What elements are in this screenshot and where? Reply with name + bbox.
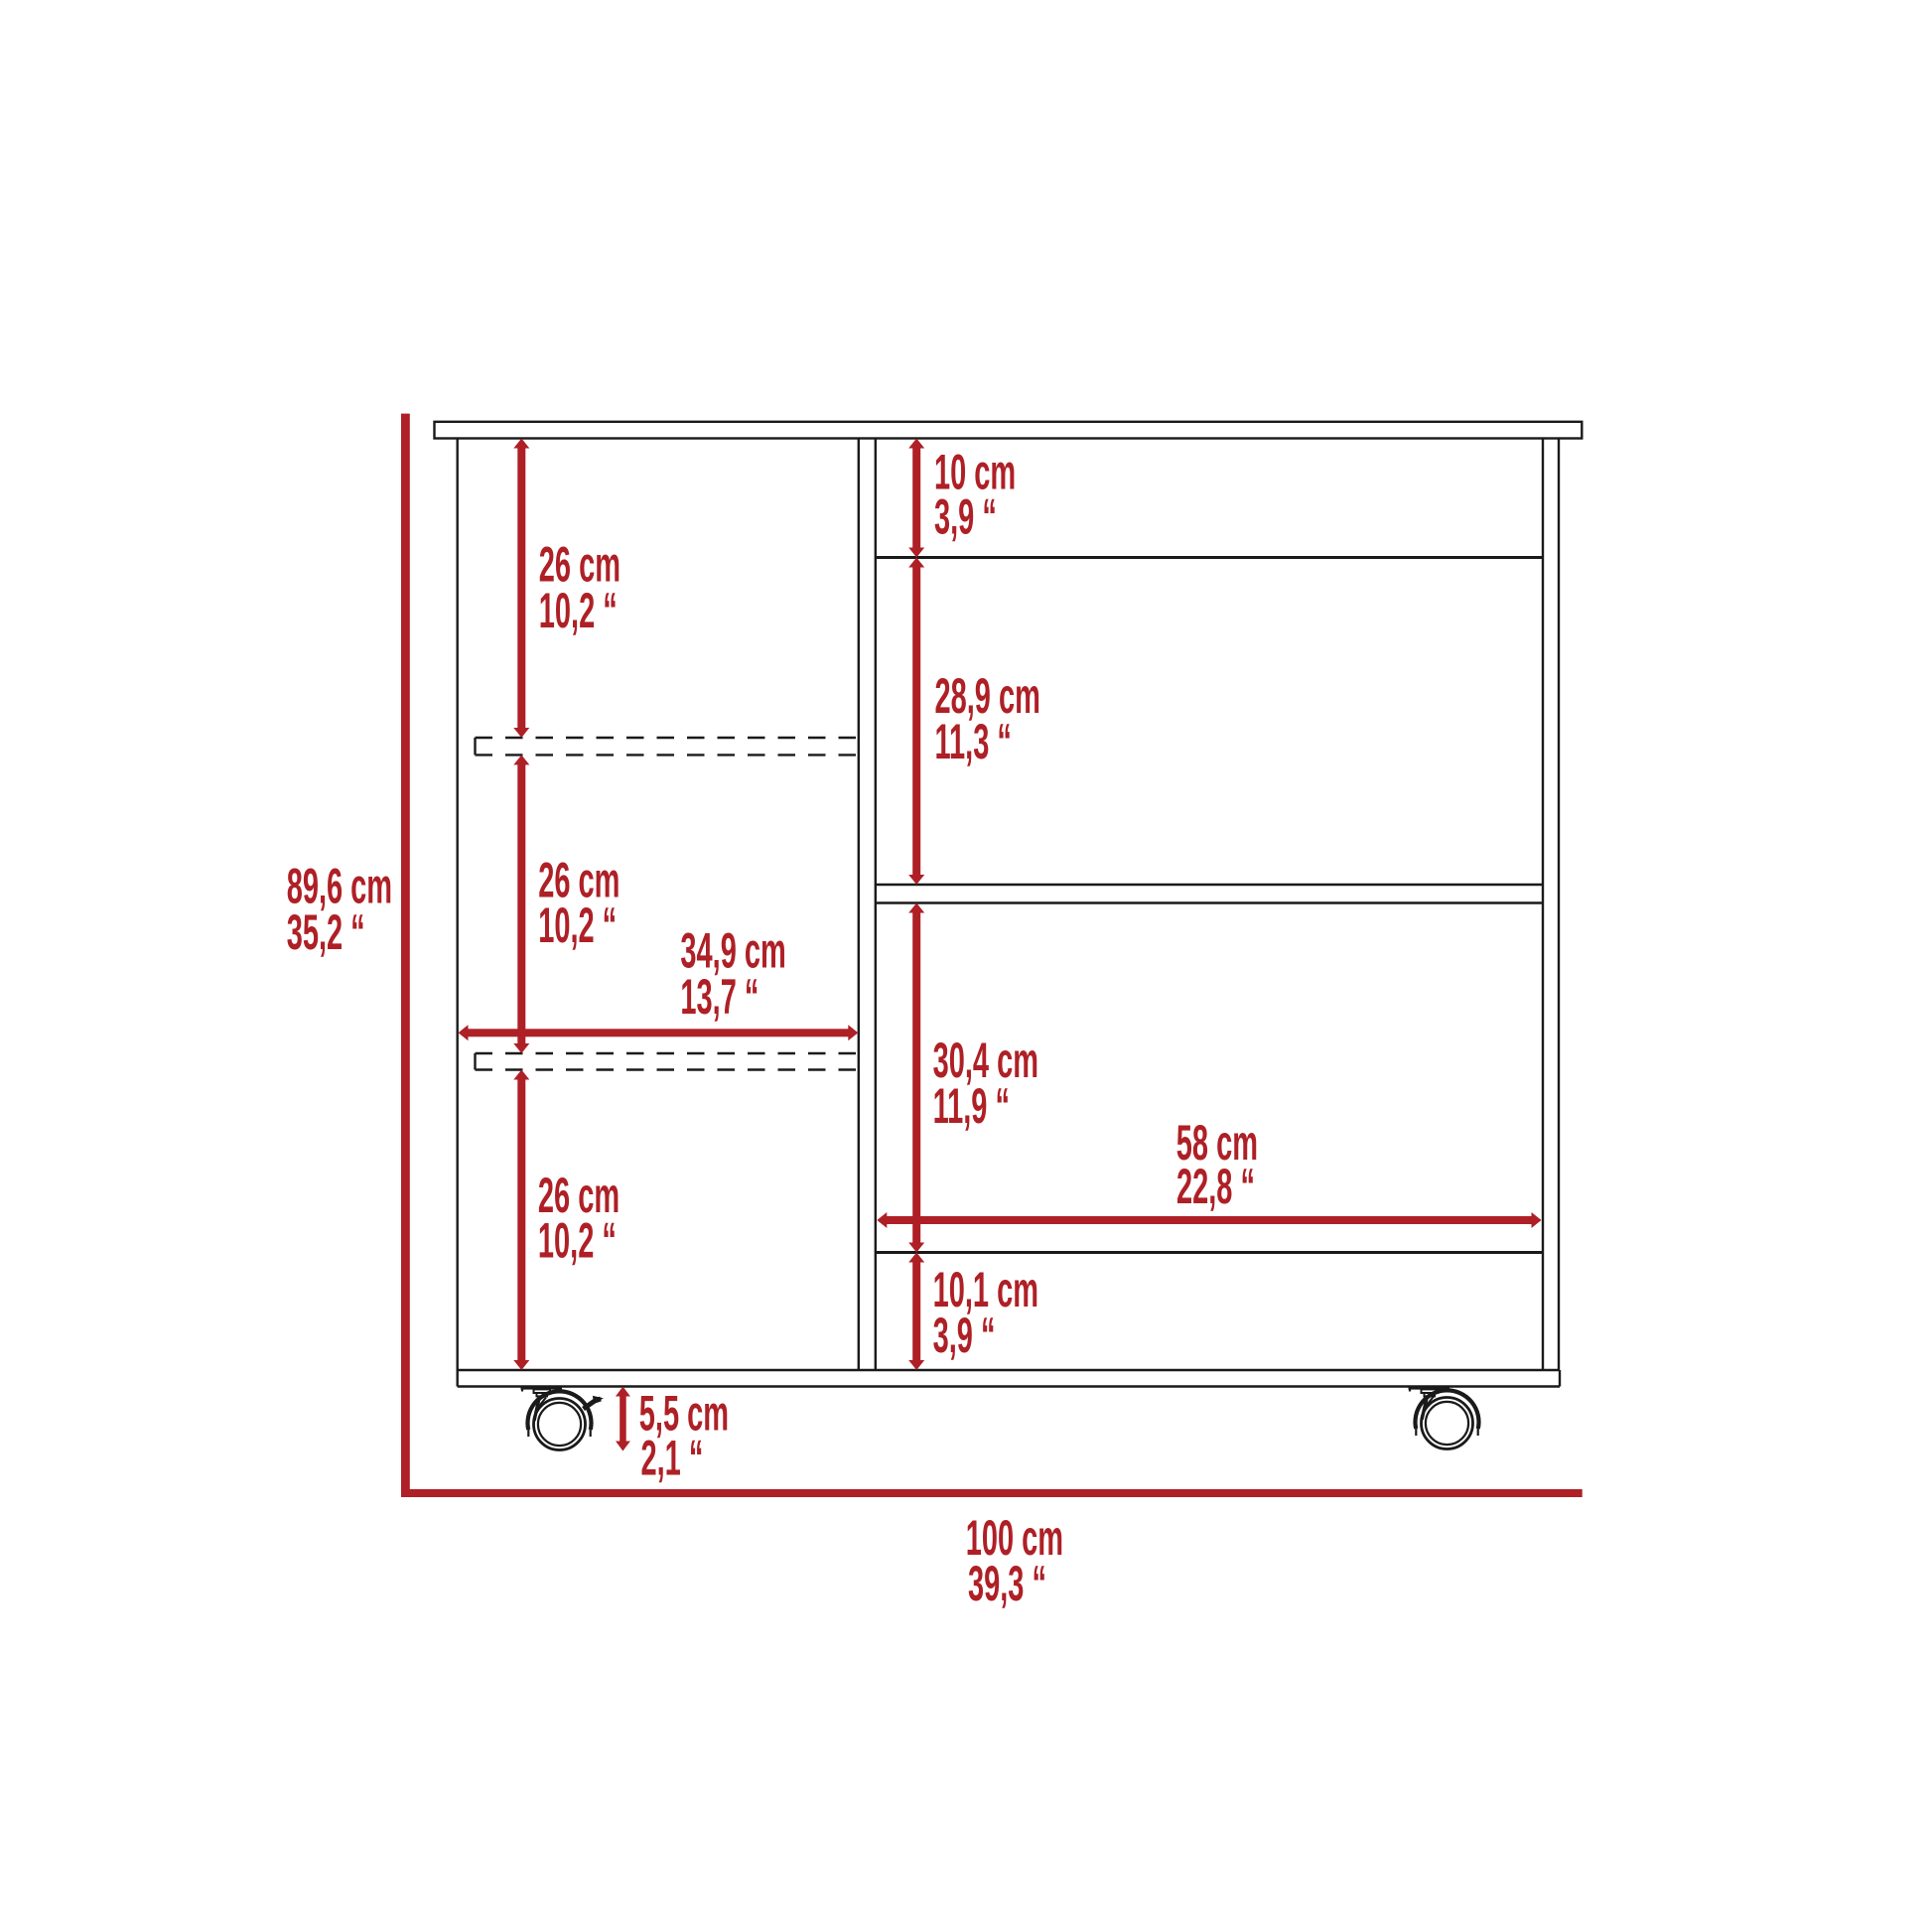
svg-text:39,3 “: 39,3 “ — [968, 1556, 1046, 1611]
svg-text:35,2 “: 35,2 “ — [287, 904, 365, 960]
svg-text:22,8 “: 22,8 “ — [1176, 1159, 1255, 1214]
svg-text:11,3 “: 11,3 “ — [935, 714, 1012, 769]
svg-text:3,9 “: 3,9 “ — [934, 488, 997, 544]
svg-text:10,2 “: 10,2 “ — [538, 1212, 617, 1268]
svg-text:10,2 “: 10,2 “ — [538, 897, 617, 953]
svg-text:11,9 “: 11,9 “ — [933, 1078, 1010, 1134]
svg-text:2,1 “: 2,1 “ — [641, 1430, 704, 1485]
svg-text:10,2 “: 10,2 “ — [539, 583, 618, 638]
svg-text:3,9 “: 3,9 “ — [933, 1308, 996, 1363]
svg-text:13,7 “: 13,7 “ — [680, 969, 759, 1025]
